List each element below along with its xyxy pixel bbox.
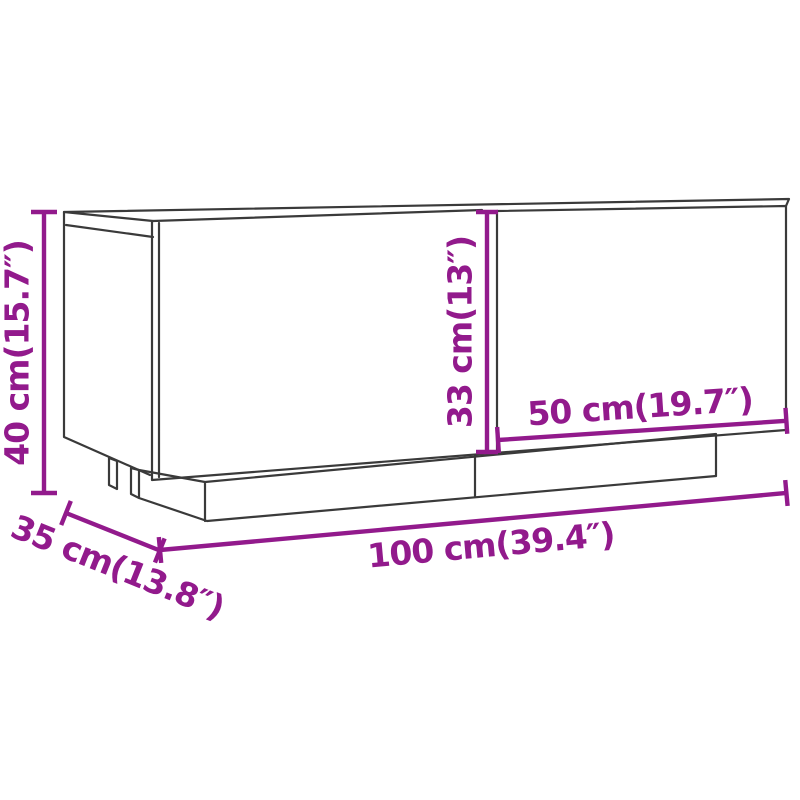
dimension-depth: 35 cm(13.8″)	[6, 484, 239, 627]
dimension-overall-height: 40 cm(15.7″)	[0, 212, 57, 493]
dimension-cap-end	[785, 480, 787, 506]
dimension-label-depth: 35 cm(13.8″)	[6, 507, 230, 627]
dimension-label-overall-height: 40 cm(15.7″)	[0, 240, 37, 466]
dimension-label-compartment-height: 33 cm(13″)	[441, 236, 480, 428]
furniture-dimension-diagram: 40 cm(15.7″) 33 cm(13″) 50 cm(19.7″) 100…	[0, 0, 800, 800]
dimension-label-overall-width: 100 cm(39.4″)	[366, 514, 616, 575]
top-panel	[64, 199, 789, 237]
dimension-cap-end	[786, 408, 788, 434]
dimension-cap-start	[497, 427, 499, 453]
left-side-panel	[64, 212, 150, 475]
left-leg	[109, 458, 117, 489]
dimension-compartment-height: 33 cm(13″)	[441, 212, 499, 452]
cabinet-outline	[64, 199, 789, 521]
diagram-canvas: 40 cm(15.7″) 33 cm(13″) 50 cm(19.7″) 100…	[0, 0, 800, 800]
